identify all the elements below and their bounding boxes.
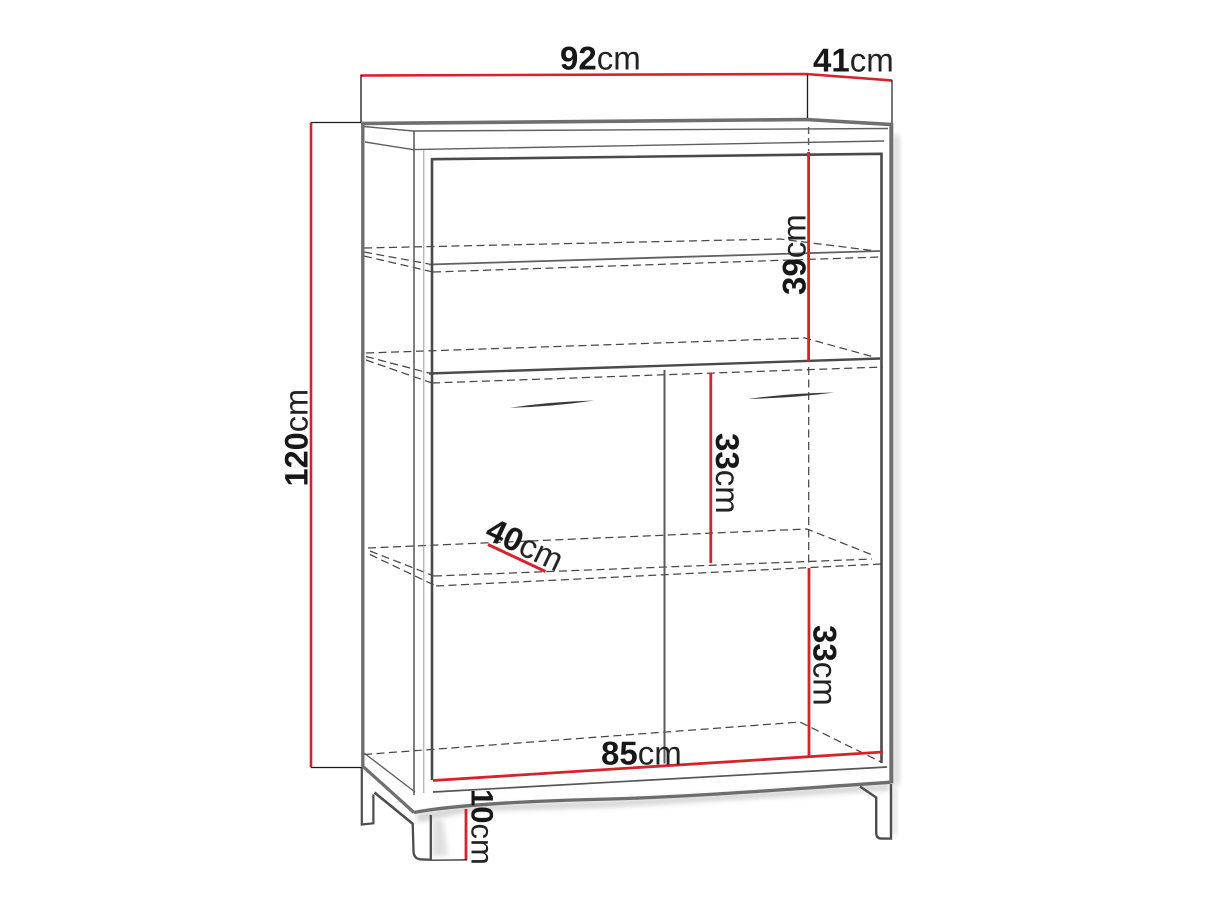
svg-text:40cm: 40cm: [481, 510, 570, 578]
svg-text:10cm: 10cm: [465, 789, 500, 865]
svg-text:120cm: 120cm: [279, 389, 315, 487]
svg-text:92cm: 92cm: [560, 40, 641, 77]
svg-text:33cm: 33cm: [807, 625, 844, 706]
svg-text:39cm: 39cm: [776, 214, 813, 295]
svg-text:41cm: 41cm: [813, 42, 894, 79]
svg-text:85cm: 85cm: [601, 735, 682, 772]
svg-text:33cm: 33cm: [709, 433, 746, 514]
